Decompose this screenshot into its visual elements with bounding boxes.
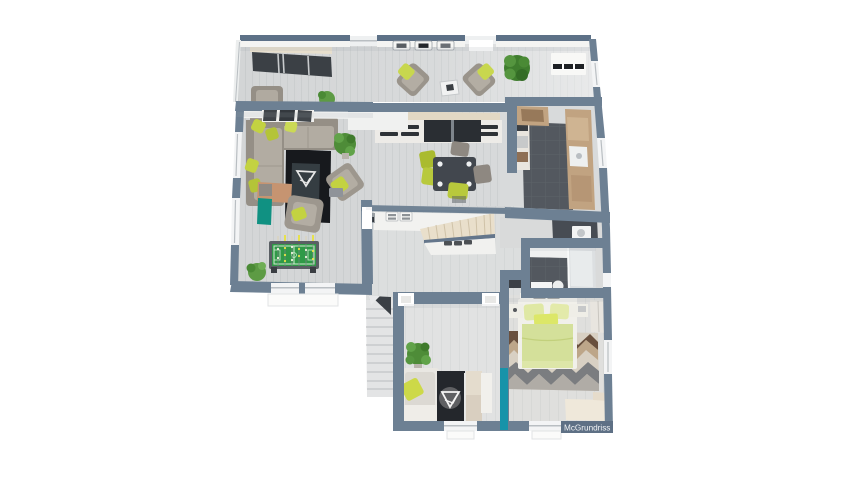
svg-text:McGrundriss: McGrundriss [564, 424, 610, 433]
